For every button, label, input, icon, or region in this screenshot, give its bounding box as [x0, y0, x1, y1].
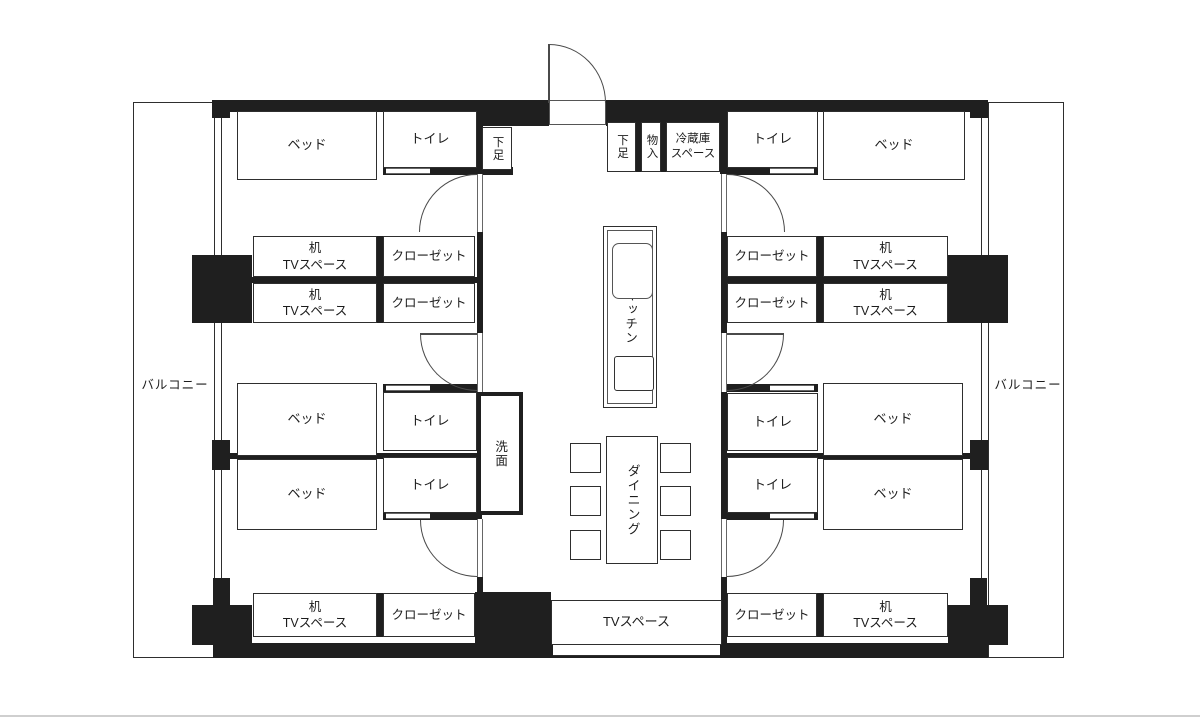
desk-tv-label: TVスペース	[283, 303, 347, 319]
door-leaf	[420, 333, 477, 335]
dining-chair	[660, 530, 691, 560]
wall-pillar	[970, 100, 988, 118]
door-opening	[477, 174, 483, 232]
toilet-box: トイレ	[383, 111, 477, 168]
dining-label: ダイニング	[624, 464, 641, 537]
door-arc	[419, 174, 477, 232]
shoe-cabinet-box: 下足	[607, 122, 636, 172]
tv-space-label: TVスペース	[603, 614, 670, 631]
closet-box: クローゼット	[727, 236, 817, 277]
bed-label: ベッド	[874, 137, 913, 154]
washroom-box: 洗面	[477, 392, 523, 515]
desk-tv-box: 机TVスペース	[253, 236, 377, 277]
balcony-left-label: バルコニー	[137, 370, 213, 396]
door-arc	[420, 334, 477, 391]
sliding-door	[770, 385, 814, 391]
dining-chair	[570, 443, 601, 473]
wall-pillar	[970, 440, 988, 470]
desk-tv-box: 机TVスペース	[823, 236, 948, 277]
closet-label: クローゼット	[734, 295, 809, 311]
desk-tv-box: 机TVスペース	[253, 283, 377, 323]
door-arc	[727, 174, 785, 232]
wall-corridor-right	[721, 577, 727, 593]
wall-pillar	[192, 255, 252, 323]
toilet-label: トイレ	[753, 477, 792, 494]
bed-label: ベッド	[873, 411, 912, 428]
wall-pillar	[212, 100, 230, 118]
wall-pillar	[948, 255, 1008, 323]
toilet-box: トイレ	[727, 457, 818, 513]
desk-label: 机	[309, 599, 322, 615]
sliding-door	[386, 385, 430, 391]
bed-box: ベッド	[823, 383, 963, 456]
desk-tv-box: 机TVスペース	[823, 283, 948, 323]
door-arc	[727, 334, 784, 391]
fridge-space-box: 冷蔵庫スペース	[666, 122, 720, 172]
wall-entry-band-left	[477, 111, 549, 126]
dining-table: ダイニング	[606, 436, 658, 564]
closet-box: クローゼット	[383, 236, 475, 277]
desk-tv-box: 机TVスペース	[253, 593, 377, 637]
bed-box: ベッド	[237, 111, 377, 180]
tv-space-box: TVスペース	[551, 600, 722, 645]
bed-box: ベッド	[823, 459, 963, 530]
door-opening	[477, 519, 483, 577]
toilet-box: トイレ	[383, 457, 477, 513]
dining-chair	[570, 530, 601, 560]
bed-box: ベッド	[237, 383, 377, 456]
closet-box: クローゼット	[727, 593, 817, 637]
dining-chair	[570, 486, 601, 516]
wall-pillar	[948, 605, 1008, 645]
storage-label: 物入	[644, 134, 659, 160]
dining-chair	[660, 443, 691, 473]
desk-tv-label: TVスペース	[283, 615, 347, 631]
desk-label: 机	[879, 287, 892, 303]
bed-label: ベッド	[287, 486, 326, 503]
closet-box: クローゼット	[383, 593, 475, 637]
entrance-door-arc	[549, 44, 606, 103]
wall-tv-mass-left	[475, 592, 551, 643]
entrance-door-leaf	[548, 44, 550, 103]
storage-box: 物入	[641, 122, 661, 172]
toilet-label: トイレ	[410, 131, 449, 148]
bed-box: ベッド	[237, 459, 377, 530]
door-arc	[727, 520, 784, 577]
tv-space-lower-strip	[553, 645, 720, 656]
wall-corridor-left	[477, 577, 483, 593]
closet-label: クローゼット	[734, 607, 809, 623]
toilet-label: トイレ	[410, 477, 449, 494]
desk-tv-box: 机TVスペース	[823, 593, 948, 637]
kitchen-stove	[614, 356, 654, 391]
door-leaf	[727, 333, 784, 335]
desk-label: 机	[879, 240, 892, 256]
washroom-label: 洗面	[492, 440, 508, 468]
toilet-box: トイレ	[383, 392, 477, 451]
bed-label: ベッド	[873, 486, 912, 503]
desk-label: 机	[309, 240, 322, 256]
entrance-threshold	[549, 100, 606, 125]
page-divider-line	[0, 715, 1200, 717]
sliding-door	[386, 168, 430, 174]
balcony-right-label: バルコニー	[990, 370, 1066, 396]
dining-chair	[660, 486, 691, 516]
desk-label: 机	[309, 287, 322, 303]
wall-pillar	[970, 578, 987, 606]
closet-label: クローゼット	[391, 295, 466, 311]
toilet-box: トイレ	[727, 393, 818, 451]
closet-box: クローゼット	[727, 283, 817, 323]
shoe-cabinet-label: 下足	[490, 136, 505, 162]
shoe-cabinet-label: 下足	[614, 134, 629, 160]
toilet-box: トイレ	[727, 111, 818, 168]
toilet-label: トイレ	[753, 131, 792, 148]
desk-tv-label: TVスペース	[283, 257, 347, 273]
bed-box: ベッド	[823, 111, 965, 180]
desk-label: 机	[879, 599, 892, 615]
sliding-door	[770, 168, 814, 174]
desk-tv-label: TVスペース	[853, 257, 917, 273]
closet-box: クローゼット	[383, 283, 475, 323]
floor-plan: バルコニー バルコニー	[0, 0, 1200, 724]
toilet-label: トイレ	[410, 413, 449, 430]
wall-pillar	[192, 605, 252, 645]
wall-pillar	[213, 578, 230, 606]
fridge-label: 冷蔵庫	[676, 132, 711, 147]
closet-label: クローゼット	[391, 607, 466, 623]
closet-label: クローゼット	[391, 248, 466, 264]
door-arc	[420, 520, 477, 577]
fridge-label: スペース	[671, 147, 716, 162]
window-wall-right	[981, 102, 989, 658]
shoe-cabinet-box: 下足	[482, 127, 512, 170]
closet-label: クローゼット	[734, 248, 809, 264]
sliding-door	[386, 513, 430, 519]
bed-label: ベッド	[287, 137, 326, 154]
wall-corridor-right	[720, 118, 727, 174]
desk-tv-label: TVスペース	[853, 303, 917, 319]
window-wall-left	[214, 102, 222, 658]
bed-label: ベッド	[287, 411, 326, 428]
kitchen-sink	[612, 243, 653, 299]
sliding-door	[770, 513, 814, 519]
toilet-label: トイレ	[753, 414, 792, 431]
desk-tv-label: TVスペース	[853, 615, 917, 631]
door-opening	[477, 333, 483, 392]
